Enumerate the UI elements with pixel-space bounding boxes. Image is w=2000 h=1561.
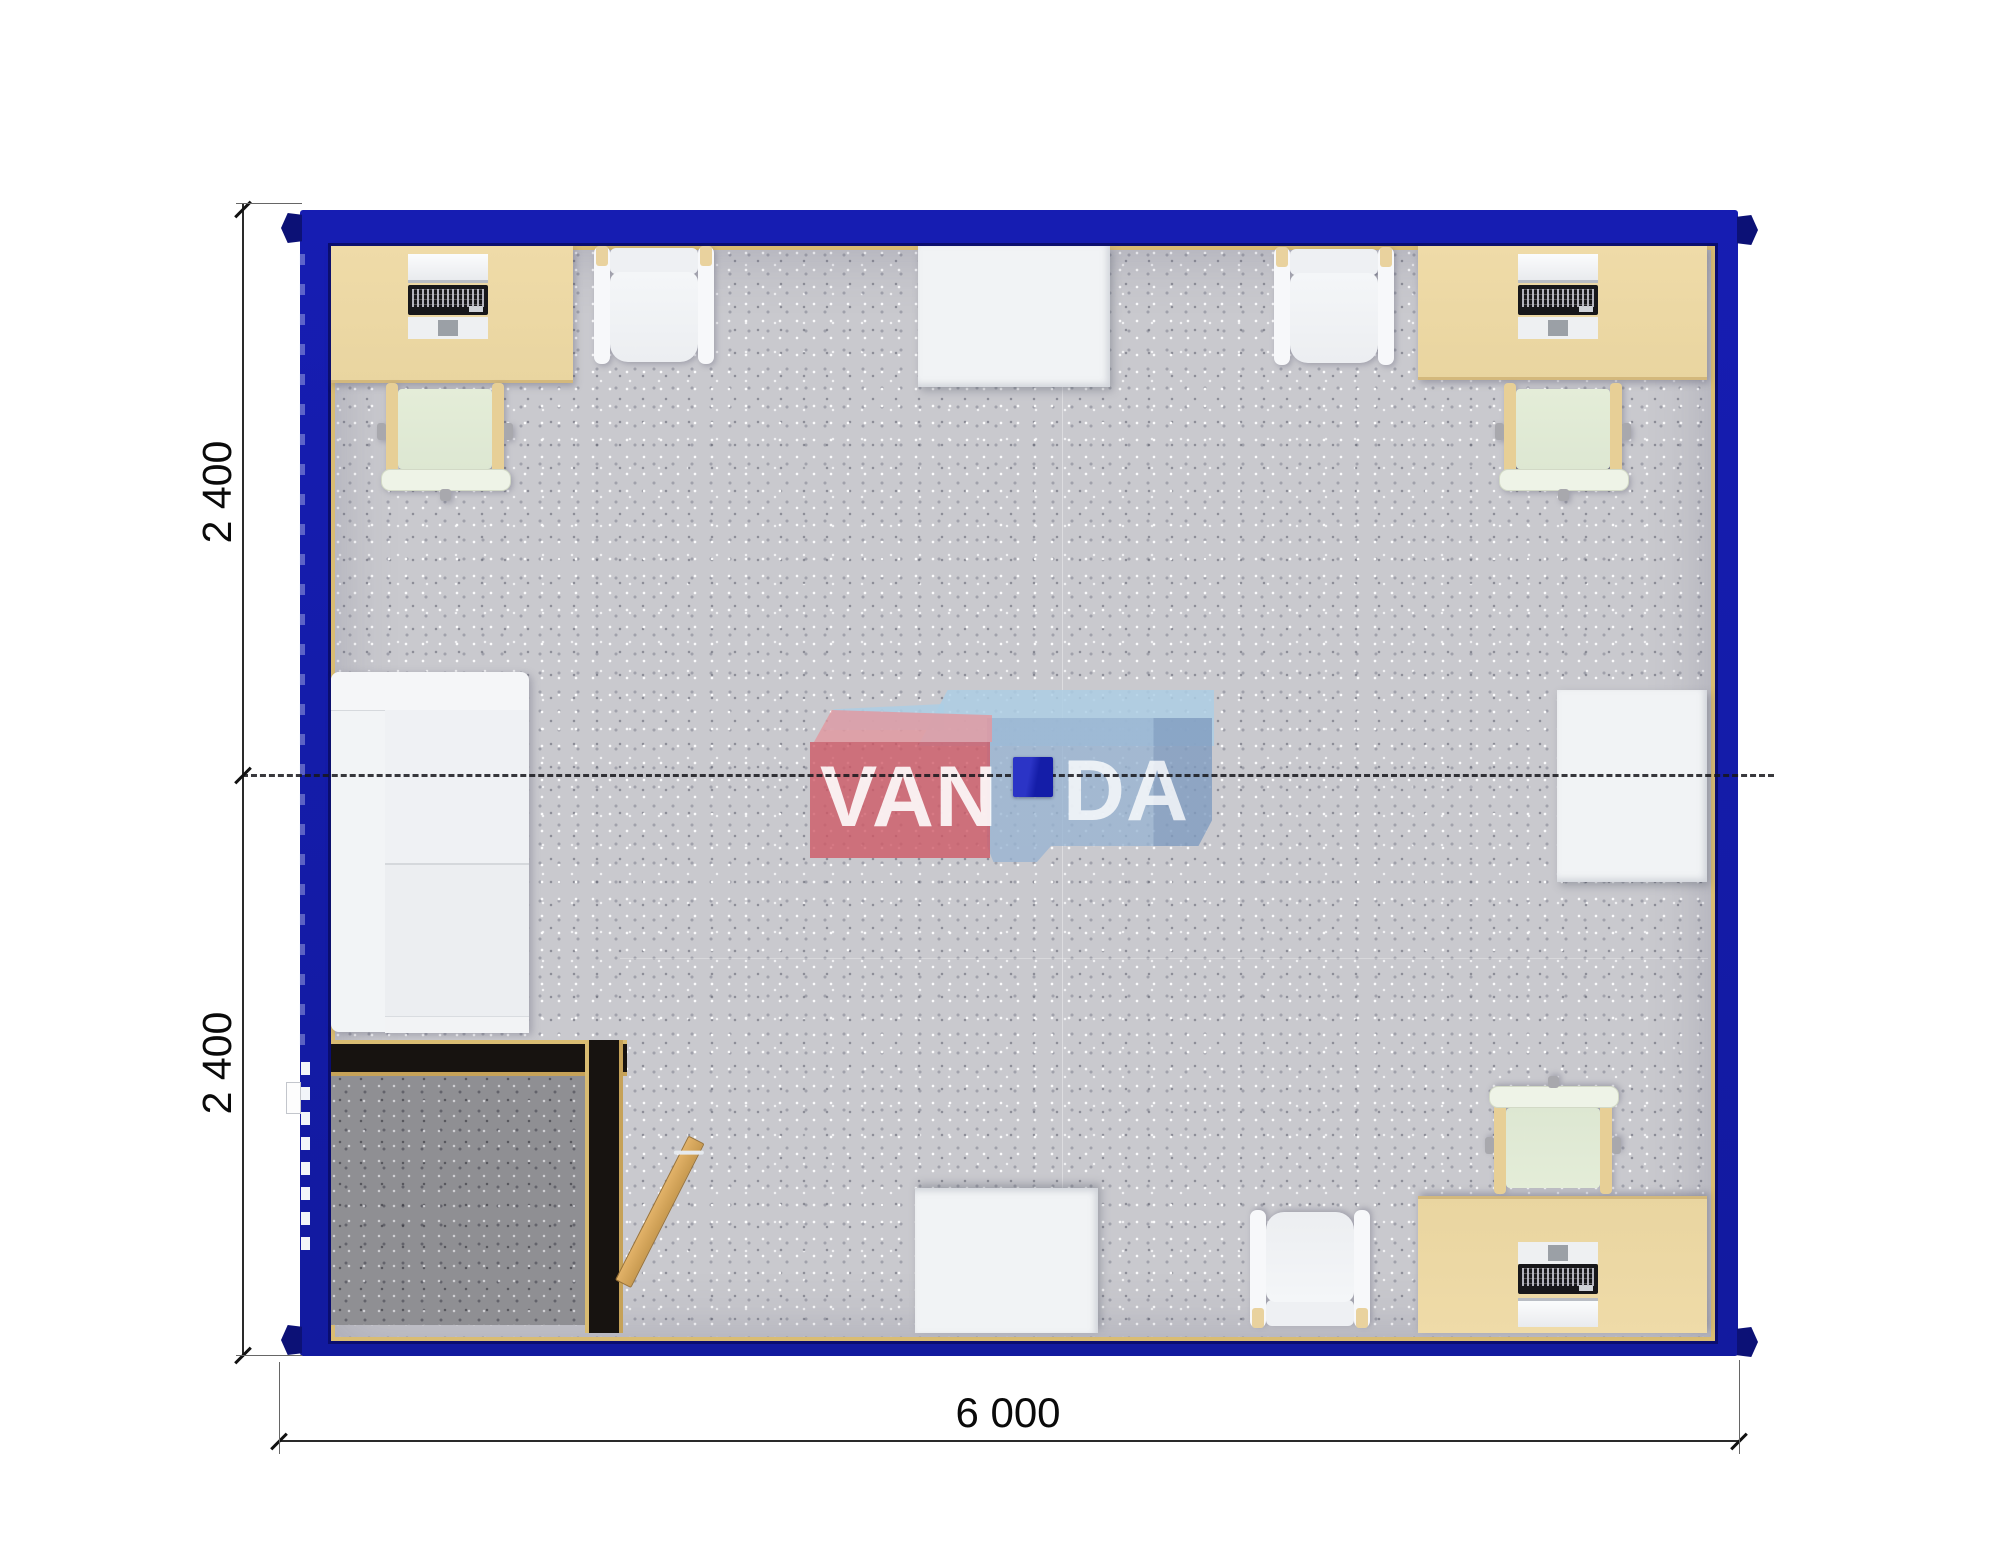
computer-top-right bbox=[1518, 254, 1598, 339]
visitor-chair-top-1 bbox=[594, 246, 714, 366]
monitor-icon bbox=[1518, 1298, 1598, 1327]
desk-pad bbox=[1518, 317, 1598, 339]
extension-line-bottom-left bbox=[236, 1355, 302, 1356]
chair-arm-tip bbox=[700, 246, 712, 266]
dimension-label-left-lower: 2 400 bbox=[195, 983, 239, 1143]
mouse-icon bbox=[1548, 1245, 1568, 1261]
chair-caster bbox=[1622, 423, 1631, 440]
dimension-label-bottom: 6 000 bbox=[908, 1391, 1108, 1435]
chair-armrest bbox=[1610, 383, 1622, 477]
chair-arm-tip bbox=[596, 246, 608, 266]
chair-arm-tip bbox=[1380, 247, 1392, 267]
carpet-seam-horizontal bbox=[620, 958, 1708, 959]
chair-caster bbox=[1495, 423, 1504, 440]
keyboard-icon bbox=[1518, 1264, 1598, 1294]
vestibule-floor-mat bbox=[331, 1068, 585, 1325]
module-joint-dashed-line bbox=[242, 774, 1774, 777]
office-chair-top-right bbox=[1504, 381, 1622, 495]
chair-backrest bbox=[610, 248, 698, 274]
chair-seat bbox=[610, 272, 698, 362]
office-chair-top-left bbox=[386, 381, 504, 495]
chair-backrest bbox=[1290, 249, 1378, 275]
sofa-front-edge bbox=[385, 1016, 529, 1033]
computer-top-left bbox=[408, 254, 488, 339]
corner-casting-top-left-icon bbox=[281, 213, 302, 243]
chair-arm-tip bbox=[1356, 1308, 1368, 1328]
sofa-cushion bbox=[385, 710, 529, 865]
floor-plan-page: VAN DA 2 400 2 400 6 000 bbox=[0, 0, 2000, 1561]
vestibule-partition-top bbox=[331, 1040, 627, 1076]
mouse-icon bbox=[1548, 320, 1568, 336]
chair-arm-tip bbox=[1276, 247, 1288, 267]
chair-seat bbox=[1266, 1212, 1354, 1302]
vestibule-partition-right bbox=[585, 1040, 623, 1333]
chair-seat bbox=[398, 389, 492, 469]
monitor-icon bbox=[1518, 254, 1598, 283]
watermark-text-van: VAN bbox=[814, 736, 1004, 858]
extension-line-bottom-end bbox=[1739, 1360, 1740, 1454]
visitor-chair-top-2 bbox=[1274, 247, 1394, 367]
chair-backrest bbox=[1266, 1300, 1354, 1326]
chair-seat bbox=[1290, 273, 1378, 363]
chair-caster bbox=[1558, 489, 1569, 501]
monitor-icon bbox=[408, 254, 488, 283]
keyboard-icon bbox=[1518, 285, 1598, 315]
chair-arm-tip bbox=[1252, 1308, 1264, 1328]
mouse-icon bbox=[438, 320, 458, 336]
chair-armrest bbox=[1494, 1100, 1506, 1194]
desk-pad bbox=[1518, 1242, 1598, 1264]
extension-line-top-left bbox=[236, 203, 302, 204]
corner-casting-top-right-icon bbox=[1737, 215, 1758, 245]
sofa bbox=[331, 672, 529, 1032]
dimension-line-bottom bbox=[279, 1440, 1739, 1442]
watermark-text-da: DA bbox=[1038, 730, 1214, 852]
sofa-cushion bbox=[385, 865, 529, 1016]
door-handle-icon bbox=[674, 1151, 704, 1155]
table-bottom-wall bbox=[915, 1188, 1098, 1333]
sofa-armrest bbox=[331, 672, 529, 711]
corner-casting-bottom-left-icon bbox=[281, 1325, 302, 1355]
office-chair-bottom-right bbox=[1494, 1082, 1612, 1196]
chair-backrest bbox=[1499, 469, 1629, 491]
vestibule-window-sill bbox=[286, 1082, 301, 1114]
chair-armrest bbox=[1504, 383, 1516, 477]
chair-seat bbox=[1516, 389, 1610, 469]
visitor-chair-bottom bbox=[1250, 1208, 1370, 1328]
chair-backrest bbox=[1489, 1086, 1619, 1108]
chair-caster bbox=[377, 423, 386, 440]
chair-caster bbox=[1485, 1137, 1494, 1154]
chair-armrest bbox=[1600, 1100, 1612, 1194]
keyboard-icon bbox=[408, 285, 488, 315]
ceiling-lamp-icon bbox=[1013, 757, 1053, 797]
dimension-label-left-upper: 2 400 bbox=[195, 412, 239, 572]
chair-armrest bbox=[492, 383, 504, 477]
sofa-backrest bbox=[331, 672, 385, 1032]
corner-casting-bottom-right-icon bbox=[1737, 1327, 1758, 1357]
chair-armrest bbox=[386, 383, 398, 477]
vestibule-window bbox=[301, 1062, 310, 1262]
table-right-wall bbox=[1557, 690, 1707, 882]
chair-caster bbox=[440, 489, 451, 501]
chair-seat bbox=[1506, 1108, 1600, 1188]
computer-bottom-right bbox=[1518, 1242, 1598, 1327]
chair-caster bbox=[1612, 1137, 1621, 1154]
vanda-watermark: VAN DA bbox=[800, 688, 1220, 880]
dimension-line-left bbox=[242, 204, 244, 1357]
chair-caster bbox=[504, 423, 513, 440]
chair-backrest bbox=[381, 469, 511, 491]
table-top-wall bbox=[918, 246, 1110, 387]
extension-line-bottom-start bbox=[279, 1362, 280, 1454]
desk-pad bbox=[408, 317, 488, 339]
chair-caster bbox=[1548, 1076, 1559, 1088]
left-wall-panel-marking bbox=[299, 254, 305, 1046]
